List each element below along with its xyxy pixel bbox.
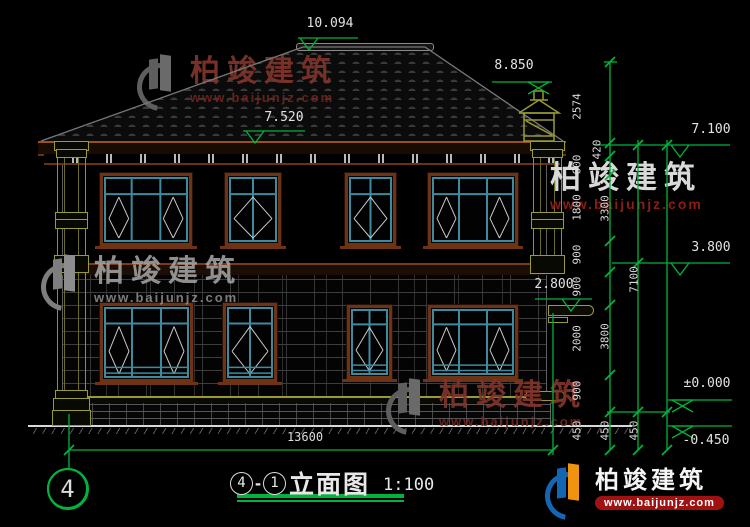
dim-tick xyxy=(605,370,615,380)
side-canopy-bracket xyxy=(548,317,568,323)
dim-label: 900 xyxy=(572,369,583,413)
window xyxy=(225,173,281,246)
window-sill xyxy=(95,246,197,249)
dim-tick xyxy=(662,445,672,455)
grid-bubble-4: 4 xyxy=(47,468,88,509)
window xyxy=(345,173,396,246)
level-bowtie xyxy=(672,426,693,438)
brand-name: 柏竣建筑 xyxy=(550,162,703,193)
dim-label: 3300 xyxy=(600,187,611,231)
window-sill xyxy=(423,379,523,382)
drawing-scale: 1:100 xyxy=(383,475,434,495)
window xyxy=(347,305,392,379)
window-sill xyxy=(342,379,397,382)
level-triangle xyxy=(671,145,689,157)
level-label: 10.094 xyxy=(288,17,372,30)
dim-tick xyxy=(64,445,74,455)
window xyxy=(428,173,518,246)
dim-tick xyxy=(605,151,615,161)
window xyxy=(223,303,277,382)
base-trim-endcap xyxy=(525,391,565,401)
watermark: 柏竣建筑www.baijunjz.com xyxy=(544,461,724,519)
level-label: ±0.000 xyxy=(665,377,749,390)
dim-tick xyxy=(605,407,615,417)
roof-ridge xyxy=(296,43,434,51)
drawing-title: 4 - 1 立面图 1:100 xyxy=(230,469,434,497)
dim-tick xyxy=(605,57,615,67)
side-canopy xyxy=(548,305,594,316)
axis-circle-to: 1 xyxy=(263,472,286,495)
dim-tick xyxy=(633,407,643,417)
window xyxy=(428,305,518,379)
dim-label: 600 xyxy=(572,143,583,187)
hip-roof-tiles xyxy=(41,46,563,141)
level-label: -0.450 xyxy=(664,434,748,447)
brand-logo-icon xyxy=(544,461,590,519)
column-band xyxy=(532,149,563,158)
dim-tick xyxy=(548,445,558,455)
window xyxy=(100,303,193,382)
column-band xyxy=(56,149,87,158)
window-sill xyxy=(423,246,523,249)
level-label: 7.100 xyxy=(669,123,750,136)
brand-url: www.baijunjz.com xyxy=(595,496,724,510)
right-porch-column xyxy=(533,141,562,272)
dim-tick xyxy=(633,140,643,150)
window-sill xyxy=(95,382,198,385)
ground-line xyxy=(28,425,632,427)
dim-tick xyxy=(605,236,615,246)
level-label: 8.850 xyxy=(472,59,556,72)
column-band xyxy=(55,219,88,229)
dim-label: 1800 xyxy=(572,186,583,230)
dim-tick xyxy=(605,445,615,455)
window xyxy=(100,173,192,246)
column-band xyxy=(52,410,91,426)
dim-tick xyxy=(662,407,672,417)
level-bowtie xyxy=(672,400,693,412)
level-bowtie xyxy=(528,82,549,94)
cad-elevation-canvas: 2574420600180090090020009004503300380045… xyxy=(0,0,750,527)
drawing-title-text: 立面图 xyxy=(289,465,370,501)
brick-plinth xyxy=(58,403,551,425)
watermark: 柏竣建筑www.baijunjz.com xyxy=(550,162,703,212)
dim-label: 900 xyxy=(572,265,583,309)
window-sill xyxy=(220,246,286,249)
window-sill xyxy=(340,246,401,249)
window-sill xyxy=(218,382,282,385)
dim-tick xyxy=(605,138,615,148)
dim-label: 2574 xyxy=(572,85,583,129)
level-bowtie xyxy=(528,82,549,94)
column-band xyxy=(531,219,564,229)
level-bowtie xyxy=(672,400,693,412)
level-label: 3.800 xyxy=(669,241,750,254)
rafter-ends xyxy=(44,154,560,165)
level-bowtie xyxy=(672,426,693,438)
dim-label: 3800 xyxy=(600,315,611,359)
dim-label: 420 xyxy=(592,128,603,172)
column-band xyxy=(530,255,565,274)
brand-url: www.baijunjz.com xyxy=(550,196,703,212)
dim-tick xyxy=(662,140,672,150)
axis-circle-from: 4 xyxy=(230,472,253,495)
dim-tick xyxy=(605,267,615,277)
dim-tick xyxy=(605,300,615,310)
dim-tick xyxy=(605,170,615,180)
dim-tick xyxy=(633,445,643,455)
left-porch-column xyxy=(57,141,86,424)
dim-label: 900 xyxy=(572,233,583,277)
dim-tick xyxy=(633,258,643,268)
axis-dash: - xyxy=(255,473,261,494)
dim-label: 7100 xyxy=(629,258,640,302)
brand-name: 柏竣建筑 xyxy=(595,469,724,493)
column-band xyxy=(54,255,89,273)
level-triangle xyxy=(671,263,689,275)
ground-hatch xyxy=(28,428,632,434)
dim-label: 2000 xyxy=(572,317,583,361)
